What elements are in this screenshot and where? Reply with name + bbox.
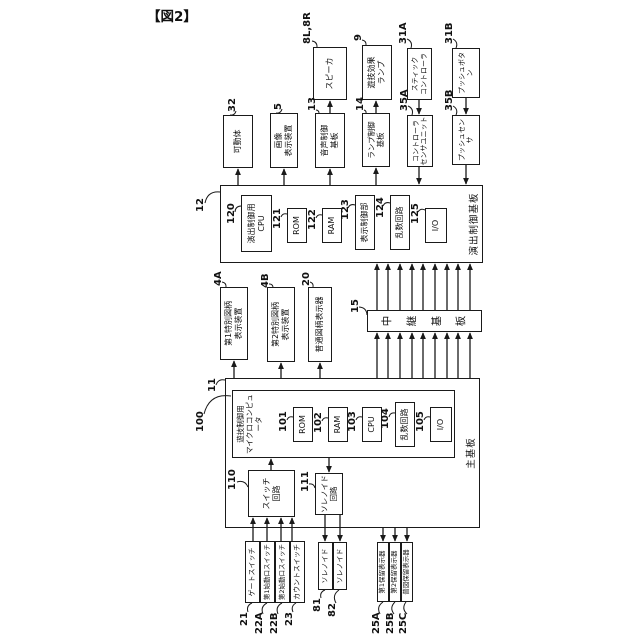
speaker-8-label: スピーカ bbox=[325, 48, 335, 99]
random-circuit-124: 乱数回路 bbox=[390, 195, 410, 250]
ref-label-23: 23 bbox=[284, 612, 295, 626]
special-symbol-display-4a-label: 第1特別図柄表示装置 bbox=[224, 288, 243, 359]
random-circuit-124-label: 乱数回路 bbox=[395, 196, 405, 249]
ref-label-122: 122 bbox=[307, 209, 318, 230]
ref-label-102: 102 bbox=[313, 412, 324, 433]
effect-cpu-120-label: 演出制御用CPU bbox=[247, 196, 266, 251]
normal-hold-display-25c-label: 普図保留表示器 bbox=[403, 543, 411, 601]
rom-101-label: ROM bbox=[298, 408, 308, 441]
ref-leader-line bbox=[334, 590, 339, 603]
gate-switch-21-label: ゲートスイッチ bbox=[248, 542, 256, 602]
normal-hold-display-25c: 普図保留表示器 bbox=[401, 542, 413, 602]
ref-label-20: 20 bbox=[301, 272, 312, 286]
relay-board-15-label: 中継基板 bbox=[368, 311, 481, 331]
solenoid-81: ソレノイド bbox=[318, 542, 333, 590]
push-button-31b-label: プッシュボタン bbox=[458, 49, 475, 97]
lamp-control-board-14: ランプ制御基板 bbox=[362, 113, 390, 167]
ref-label-105: 105 bbox=[415, 411, 426, 432]
figure-title: 【図2】 bbox=[147, 5, 197, 25]
solenoid-82-label: ソレノイド bbox=[336, 543, 344, 589]
lamp-control-board-14-label: ランプ制御基板 bbox=[367, 114, 385, 166]
ref-label-4B: 4B bbox=[260, 273, 271, 288]
switch-circuit-110: スイッチ回路 bbox=[248, 470, 295, 517]
first-start-switch-22a-label: 第1始動口スイッチ bbox=[264, 542, 272, 602]
count-switch-23: カウントスイッチ bbox=[290, 541, 305, 603]
rotated-diagram: 演出制御基板主基板遊技制御用マイクロコンピュータ演出制御用CPUROMRAM表示… bbox=[195, 8, 487, 638]
ref-leader-line bbox=[321, 590, 325, 598]
ref-label-110: 110 bbox=[227, 469, 238, 490]
io-105: I/O bbox=[430, 407, 452, 442]
ref-label-25A: 25A bbox=[371, 612, 382, 634]
ram-102-label: RAM bbox=[333, 408, 343, 441]
speaker-8: スピーカ bbox=[313, 47, 347, 100]
ref-label-104: 104 bbox=[380, 408, 391, 429]
ref-leader-line bbox=[205, 192, 220, 203]
special-symbol-display-4b: 第2特別図柄表示装置 bbox=[267, 287, 295, 362]
ram-102: RAM bbox=[328, 407, 348, 442]
ref-label-14: 14 bbox=[355, 97, 366, 111]
cpu-103-label: CPU bbox=[367, 408, 377, 441]
ref-label-81: 81 bbox=[312, 598, 323, 612]
display-control-123: 表示制御部 bbox=[355, 195, 375, 250]
diagram-canvas: 演出制御基板主基板遊技制御用マイクロコンピュータ演出制御用CPUROMRAM表示… bbox=[195, 8, 487, 638]
gate-switch-21: ゲートスイッチ bbox=[245, 541, 260, 603]
special-symbol-display-4b-label: 第2特別図柄表示装置 bbox=[271, 288, 290, 361]
ref-label-11: 11 bbox=[207, 378, 218, 392]
ref-label-124: 124 bbox=[375, 197, 386, 218]
push-sensor-35b-label: プッシュセンサ bbox=[458, 116, 475, 164]
game-effect-lamp-9: 遊技効果ランプ bbox=[362, 45, 392, 100]
controller-sensor-unit-35a: コントローラセンサユニット bbox=[407, 115, 433, 167]
ref-label-22A: 22A bbox=[254, 612, 265, 634]
ref-leader-line bbox=[247, 603, 252, 612]
ref-label-31A: 31A bbox=[398, 22, 409, 44]
ref-leader-line bbox=[292, 603, 296, 612]
ref-label-125: 125 bbox=[410, 203, 421, 224]
ref-label-121: 121 bbox=[272, 208, 283, 229]
relay-board-15: 中継基板 bbox=[367, 310, 482, 332]
push-sensor-35b: プッシュセンサ bbox=[452, 115, 480, 165]
solenoid-circuit-111: ソレノイド回路 bbox=[315, 473, 343, 515]
image-display-5: 画像表示装置 bbox=[270, 113, 298, 168]
stick-controller-31a-label: スティックコントローラ bbox=[411, 49, 428, 99]
ram-122: RAM bbox=[322, 208, 342, 243]
io-125: I/O bbox=[425, 208, 447, 243]
rom-101: ROM bbox=[293, 407, 313, 442]
ref-label-12: 12 bbox=[195, 198, 206, 212]
second-start-switch-22b-label: 第2始動口スイッチ bbox=[279, 542, 287, 602]
random-circuit-104: 乱数回路 bbox=[395, 402, 415, 447]
ref-label-82: 82 bbox=[327, 603, 338, 617]
patent-figure-page: 【図2】 演出制御基板主基板遊技制御用マイクロコンピュータ演出制御用CPUROM… bbox=[0, 0, 640, 640]
random-circuit-104-label: 乱数回路 bbox=[400, 403, 410, 446]
ref-label-120: 120 bbox=[226, 203, 237, 224]
io-105-label: I/O bbox=[436, 408, 446, 441]
ref-leader-line bbox=[237, 481, 248, 487]
second-hold-display-25b: 第2保留表示器 bbox=[389, 542, 401, 602]
first-hold-display-25a: 第1保留表示器 bbox=[377, 542, 389, 602]
controller-sensor-unit-35a-label: コントローラセンサユニット bbox=[412, 116, 429, 166]
rom-121-label: ROM bbox=[292, 209, 302, 242]
ref-label-35A: 35A bbox=[399, 89, 410, 111]
ref-label-22B: 22B bbox=[269, 612, 280, 634]
rom-121: ROM bbox=[287, 208, 307, 243]
ref-label-21: 21 bbox=[239, 612, 250, 626]
second-hold-display-25b-label: 第2保留表示器 bbox=[391, 543, 399, 601]
ref-label-111: 111 bbox=[300, 471, 311, 492]
push-button-31b: プッシュボタン bbox=[452, 48, 480, 98]
sound-control-board-13: 音声制御基板 bbox=[315, 113, 345, 168]
solenoid-81-label: ソレノイド bbox=[321, 543, 329, 589]
solenoid-82: ソレノイド bbox=[333, 542, 347, 590]
sound-control-board-13-label: 音声制御基板 bbox=[320, 114, 339, 167]
first-hold-display-25a-label: 第1保留表示器 bbox=[379, 543, 387, 601]
display-control-123-label: 表示制御部 bbox=[360, 196, 370, 249]
normal-symbol-display-20-label: 普通図柄表示器 bbox=[315, 288, 325, 361]
ref-label-25C: 25C bbox=[398, 613, 409, 634]
ref-label-100: 100 bbox=[195, 411, 206, 432]
stick-controller-31a: スティックコントローラ bbox=[407, 48, 432, 100]
solenoid-circuit-111-label: ソレノイド回路 bbox=[320, 474, 338, 514]
first-start-switch-22a: 第1始動口スイッチ bbox=[260, 541, 275, 603]
ref-label-8L8R: 8L,8R bbox=[302, 12, 313, 44]
ref-label-4A: 4A bbox=[213, 271, 224, 286]
ref-label-101: 101 bbox=[278, 411, 289, 432]
io-125-label: I/O bbox=[431, 209, 441, 242]
switch-circuit-110-label: スイッチ回路 bbox=[262, 471, 281, 516]
game-effect-lamp-9-label: 遊技効果ランプ bbox=[367, 46, 386, 99]
ref-label-35B: 35B bbox=[444, 89, 455, 111]
ref-label-103: 103 bbox=[347, 411, 358, 432]
ref-label-25B: 25B bbox=[385, 612, 396, 634]
ref-label-123: 123 bbox=[340, 199, 351, 220]
ref-label-13: 13 bbox=[307, 97, 318, 111]
ref-label-15: 15 bbox=[350, 299, 361, 313]
ref-label-31B: 31B bbox=[444, 22, 455, 44]
normal-symbol-display-20: 普通図柄表示器 bbox=[308, 287, 332, 362]
cpu-103: CPU bbox=[362, 407, 382, 442]
special-symbol-display-4a: 第1特別図柄表示装置 bbox=[220, 287, 248, 360]
count-switch-23-label: カウントスイッチ bbox=[293, 542, 301, 602]
second-start-switch-22b: 第2始動口スイッチ bbox=[275, 541, 290, 603]
movable-body-32: 可動体 bbox=[223, 115, 253, 168]
ref-label-32: 32 bbox=[227, 98, 238, 112]
ram-122-label: RAM bbox=[327, 209, 337, 242]
effect-cpu-120: 演出制御用CPU bbox=[241, 195, 272, 252]
movable-body-32-label: 可動体 bbox=[233, 116, 243, 167]
ref-label-9: 9 bbox=[353, 34, 364, 41]
image-display-5-label: 画像表示装置 bbox=[274, 114, 293, 167]
ref-label-5: 5 bbox=[273, 103, 284, 110]
ref-leader-line bbox=[204, 396, 231, 414]
